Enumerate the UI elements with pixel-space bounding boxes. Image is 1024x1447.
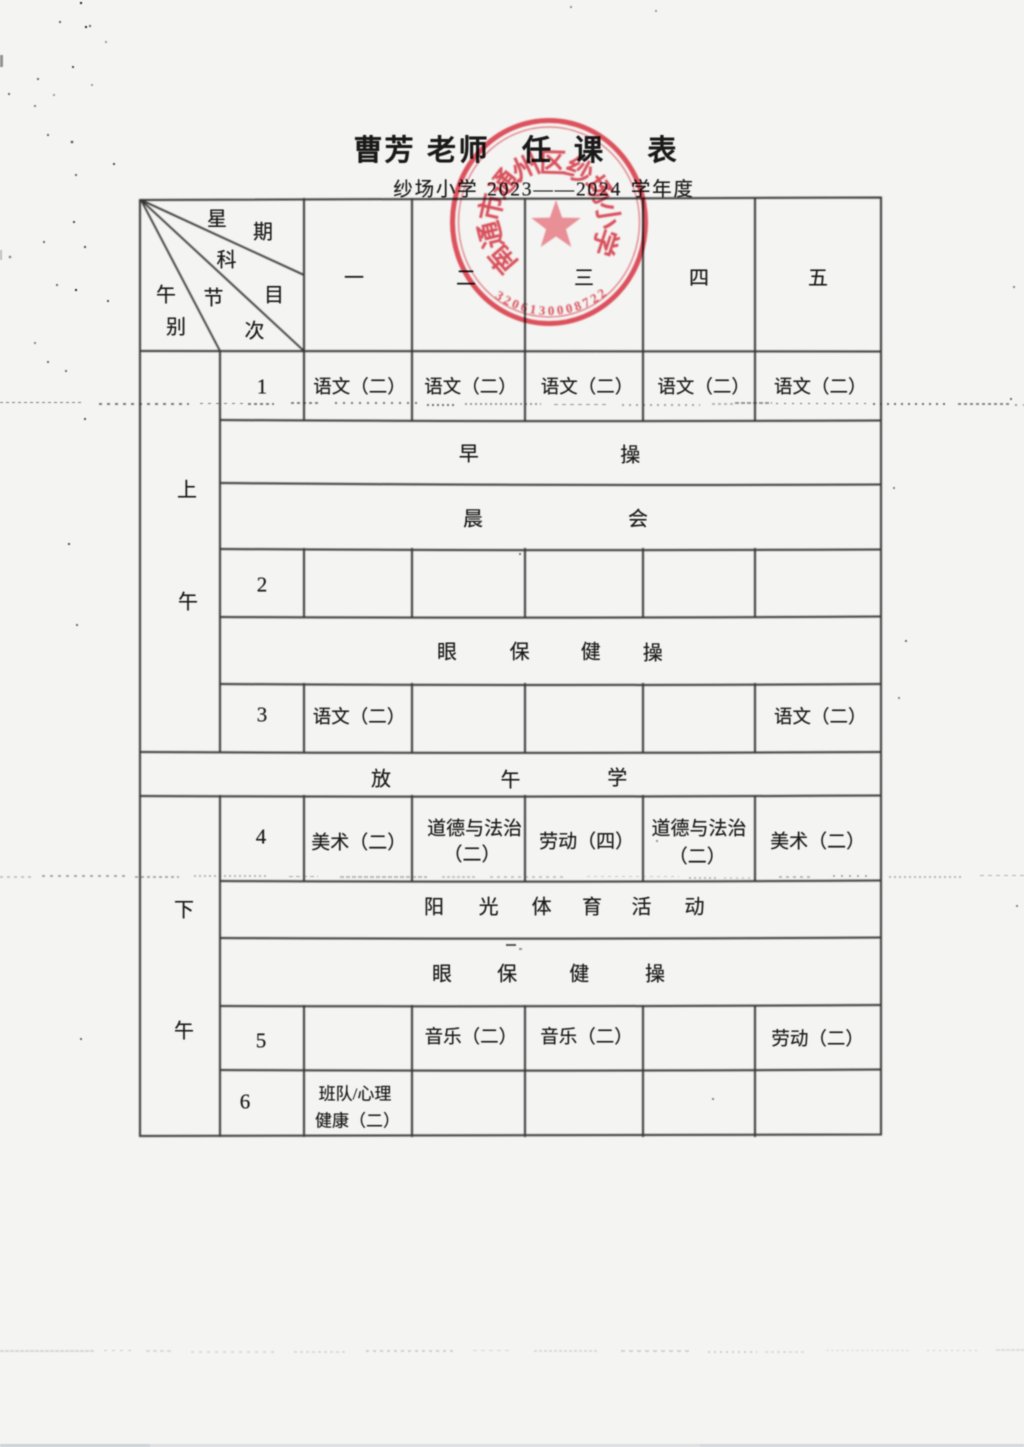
svg-text:南通市通州区纱场小学: 南通市通州区纱场小学: [473, 148, 624, 279]
